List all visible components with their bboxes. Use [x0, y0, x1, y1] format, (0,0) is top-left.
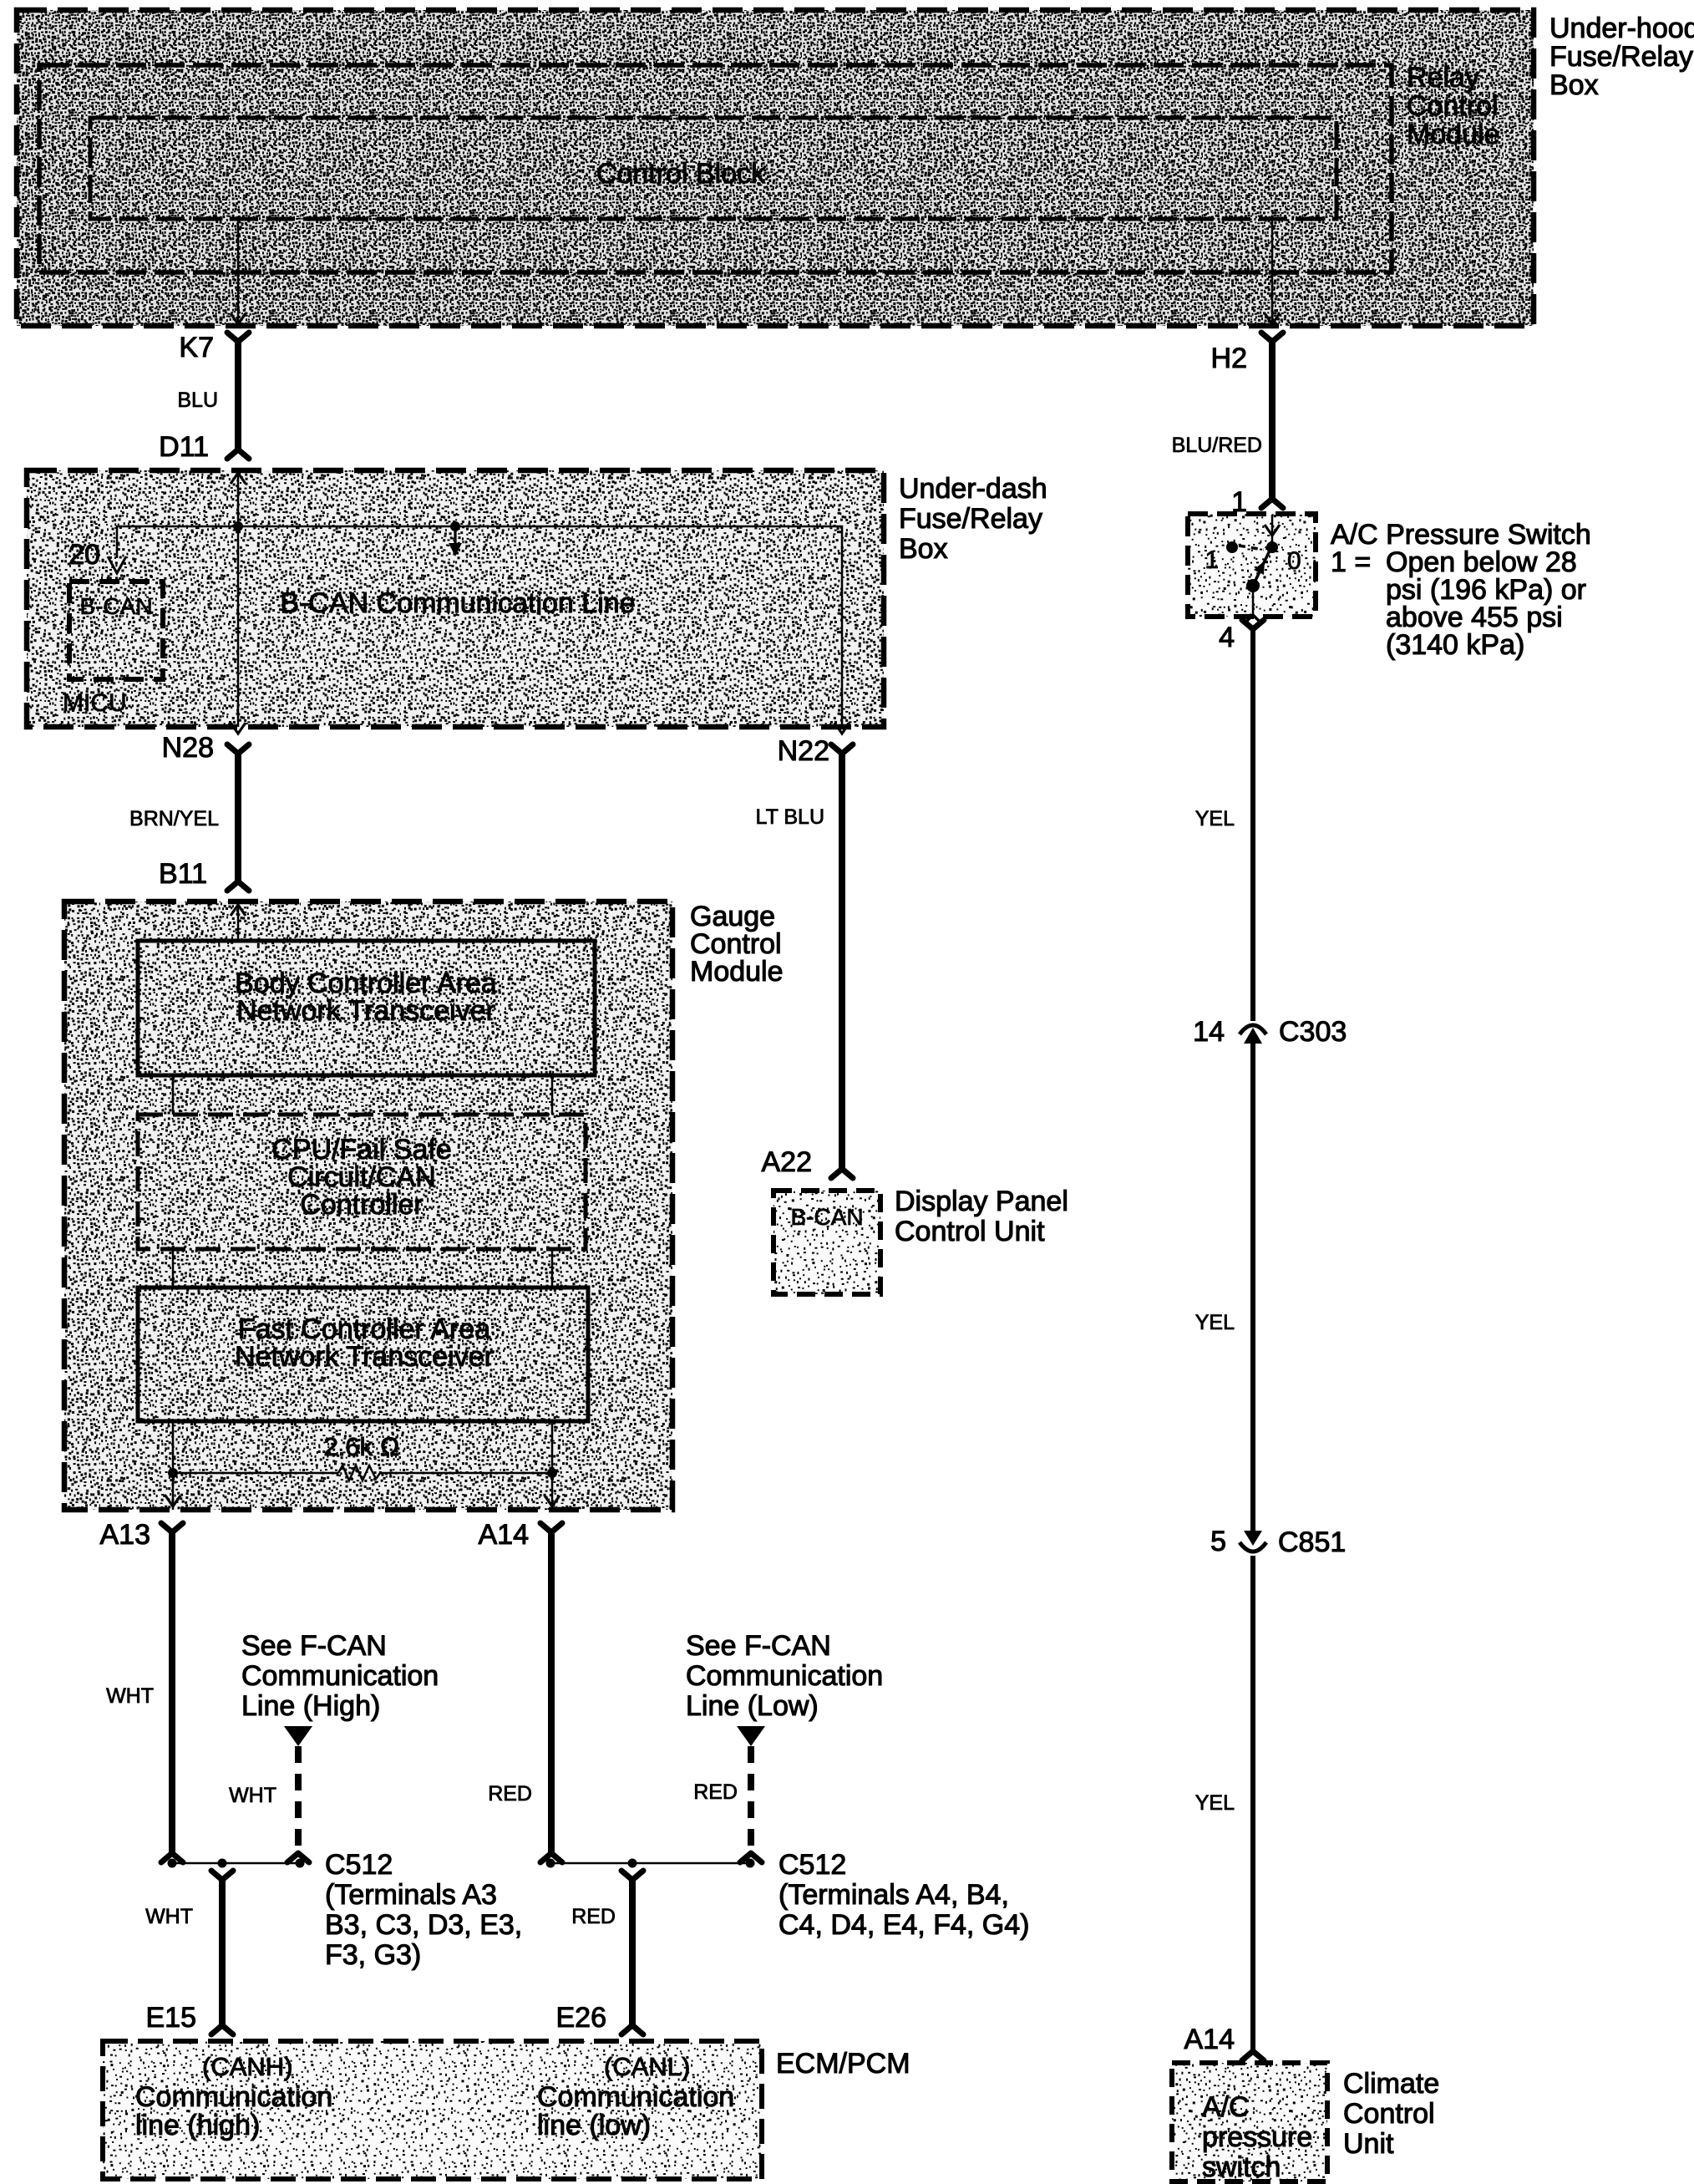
svg-text:pressure: pressure [1202, 2121, 1312, 2153]
svg-text:A14: A14 [479, 1519, 530, 1551]
svg-text:Communication: Communication [241, 1660, 439, 1692]
svg-text:BLU/RED: BLU/RED [1172, 434, 1262, 457]
svg-text:Under-dash: Under-dash [899, 473, 1047, 505]
svg-text:Control Unit: Control Unit [895, 1216, 1045, 1247]
svg-text:B-CAN: B-CAN [790, 1204, 863, 1230]
svg-text:20: 20 [68, 539, 100, 571]
svg-text:Control Block: Control Block [596, 158, 766, 190]
svg-text:E26: E26 [556, 2002, 607, 2034]
svg-text:C4, D4, E4, F4, G4): C4, D4, E4, F4, G4) [779, 1909, 1029, 1941]
svg-text:MICU: MICU [63, 689, 127, 717]
svg-text:line (low): line (low) [537, 2110, 651, 2141]
svg-text:Unit: Unit [1343, 2128, 1394, 2160]
svg-text:BRN/YEL: BRN/YEL [129, 807, 219, 830]
svg-text:0: 0 [1287, 547, 1301, 575]
svg-text:WHT: WHT [106, 1684, 154, 1708]
svg-text:(Terminals A3: (Terminals A3 [325, 1879, 497, 1911]
svg-text:Box: Box [899, 533, 948, 565]
svg-text:See F-CAN: See F-CAN [241, 1630, 387, 1662]
svg-text:H2: H2 [1211, 343, 1247, 374]
svg-text:ECM/PCM: ECM/PCM [776, 2048, 910, 2080]
svg-text:Line (Low): Line (Low) [686, 1690, 819, 1722]
svg-text:C512: C512 [325, 1849, 393, 1881]
svg-text:LT BLU: LT BLU [756, 805, 824, 829]
svg-text:Fuse/Relay: Fuse/Relay [1549, 41, 1693, 73]
svg-text:1 =: 1 = [1331, 546, 1371, 578]
svg-text:Box: Box [1549, 69, 1599, 101]
svg-text:2.6k Ω: 2.6k Ω [323, 1432, 399, 1461]
svg-text:B11: B11 [159, 858, 207, 890]
svg-text:Communication: Communication [686, 1660, 883, 1692]
svg-text:B-CAN Communication Line: B-CAN Communication Line [280, 587, 635, 619]
svg-text:Under-hood: Under-hood [1549, 13, 1694, 44]
svg-text:Module: Module [1407, 119, 1500, 150]
svg-text:4: 4 [1219, 622, 1235, 653]
svg-text:B3, C3, D3, E3,: B3, C3, D3, E3, [325, 1909, 522, 1941]
svg-text:Display Panel: Display Panel [895, 1186, 1068, 1217]
svg-text:C303: C303 [1279, 1016, 1347, 1048]
svg-text:Fuse/Relay: Fuse/Relay [899, 503, 1042, 535]
svg-text:C851: C851 [1278, 1526, 1346, 1558]
svg-text:N22: N22 [778, 735, 829, 767]
svg-text:A14: A14 [1184, 2024, 1235, 2055]
svg-text:YEL: YEL [1195, 1791, 1235, 1815]
svg-text:E15: E15 [146, 2002, 197, 2034]
svg-text:WHT: WHT [229, 1784, 276, 1807]
svg-text:C512: C512 [779, 1849, 846, 1881]
svg-text:See F-CAN: See F-CAN [686, 1630, 831, 1662]
svg-text:1: 1 [1231, 486, 1247, 518]
svg-text:B-CAN: B-CAN [79, 593, 152, 619]
svg-text:Control: Control [1407, 90, 1499, 122]
svg-text:Network Transceiver: Network Transceiver [235, 1341, 494, 1373]
svg-text:Communication: Communication [537, 2081, 734, 2113]
svg-text:(CANL): (CANL) [604, 2052, 690, 2081]
svg-text:(CANH): (CANH) [202, 2052, 293, 2081]
svg-text:F3, G3): F3, G3) [325, 1939, 421, 1971]
svg-text:D11: D11 [159, 431, 209, 463]
svg-text:A/C: A/C [1202, 2091, 1250, 2123]
svg-text:WHT: WHT [145, 1905, 193, 1928]
svg-text:YEL: YEL [1195, 1311, 1235, 1334]
svg-text:BLU: BLU [177, 389, 218, 412]
svg-text:K7: K7 [179, 332, 214, 363]
svg-text:14: 14 [1193, 1016, 1225, 1048]
svg-text:(3140 kPa): (3140 kPa) [1386, 629, 1524, 661]
svg-text:RED: RED [571, 1905, 616, 1928]
svg-text:Controller: Controller [300, 1189, 423, 1221]
svg-text:Line (High): Line (High) [241, 1690, 380, 1722]
svg-text:N28: N28 [162, 732, 214, 764]
svg-text:A13: A13 [100, 1519, 151, 1551]
svg-text:5: 5 [1210, 1526, 1226, 1557]
svg-text:RED: RED [488, 1782, 532, 1806]
svg-text:A22: A22 [762, 1146, 813, 1178]
svg-text:Control: Control [1343, 2098, 1435, 2130]
svg-text:Network Transceiver: Network Transceiver [236, 995, 495, 1027]
svg-text:Communication: Communication [135, 2081, 332, 2113]
svg-text:RED: RED [693, 1780, 738, 1804]
svg-text:switch: switch [1202, 2151, 1281, 2183]
svg-text:YEL: YEL [1195, 807, 1235, 830]
svg-text:Relay: Relay [1407, 62, 1479, 94]
svg-text:Module: Module [690, 956, 784, 988]
svg-text:Climate: Climate [1343, 2068, 1439, 2100]
svg-text:line (high): line (high) [135, 2110, 260, 2141]
svg-text:(Terminals A4, B4,: (Terminals A4, B4, [779, 1879, 1009, 1911]
svg-text:1: 1 [1205, 546, 1219, 574]
